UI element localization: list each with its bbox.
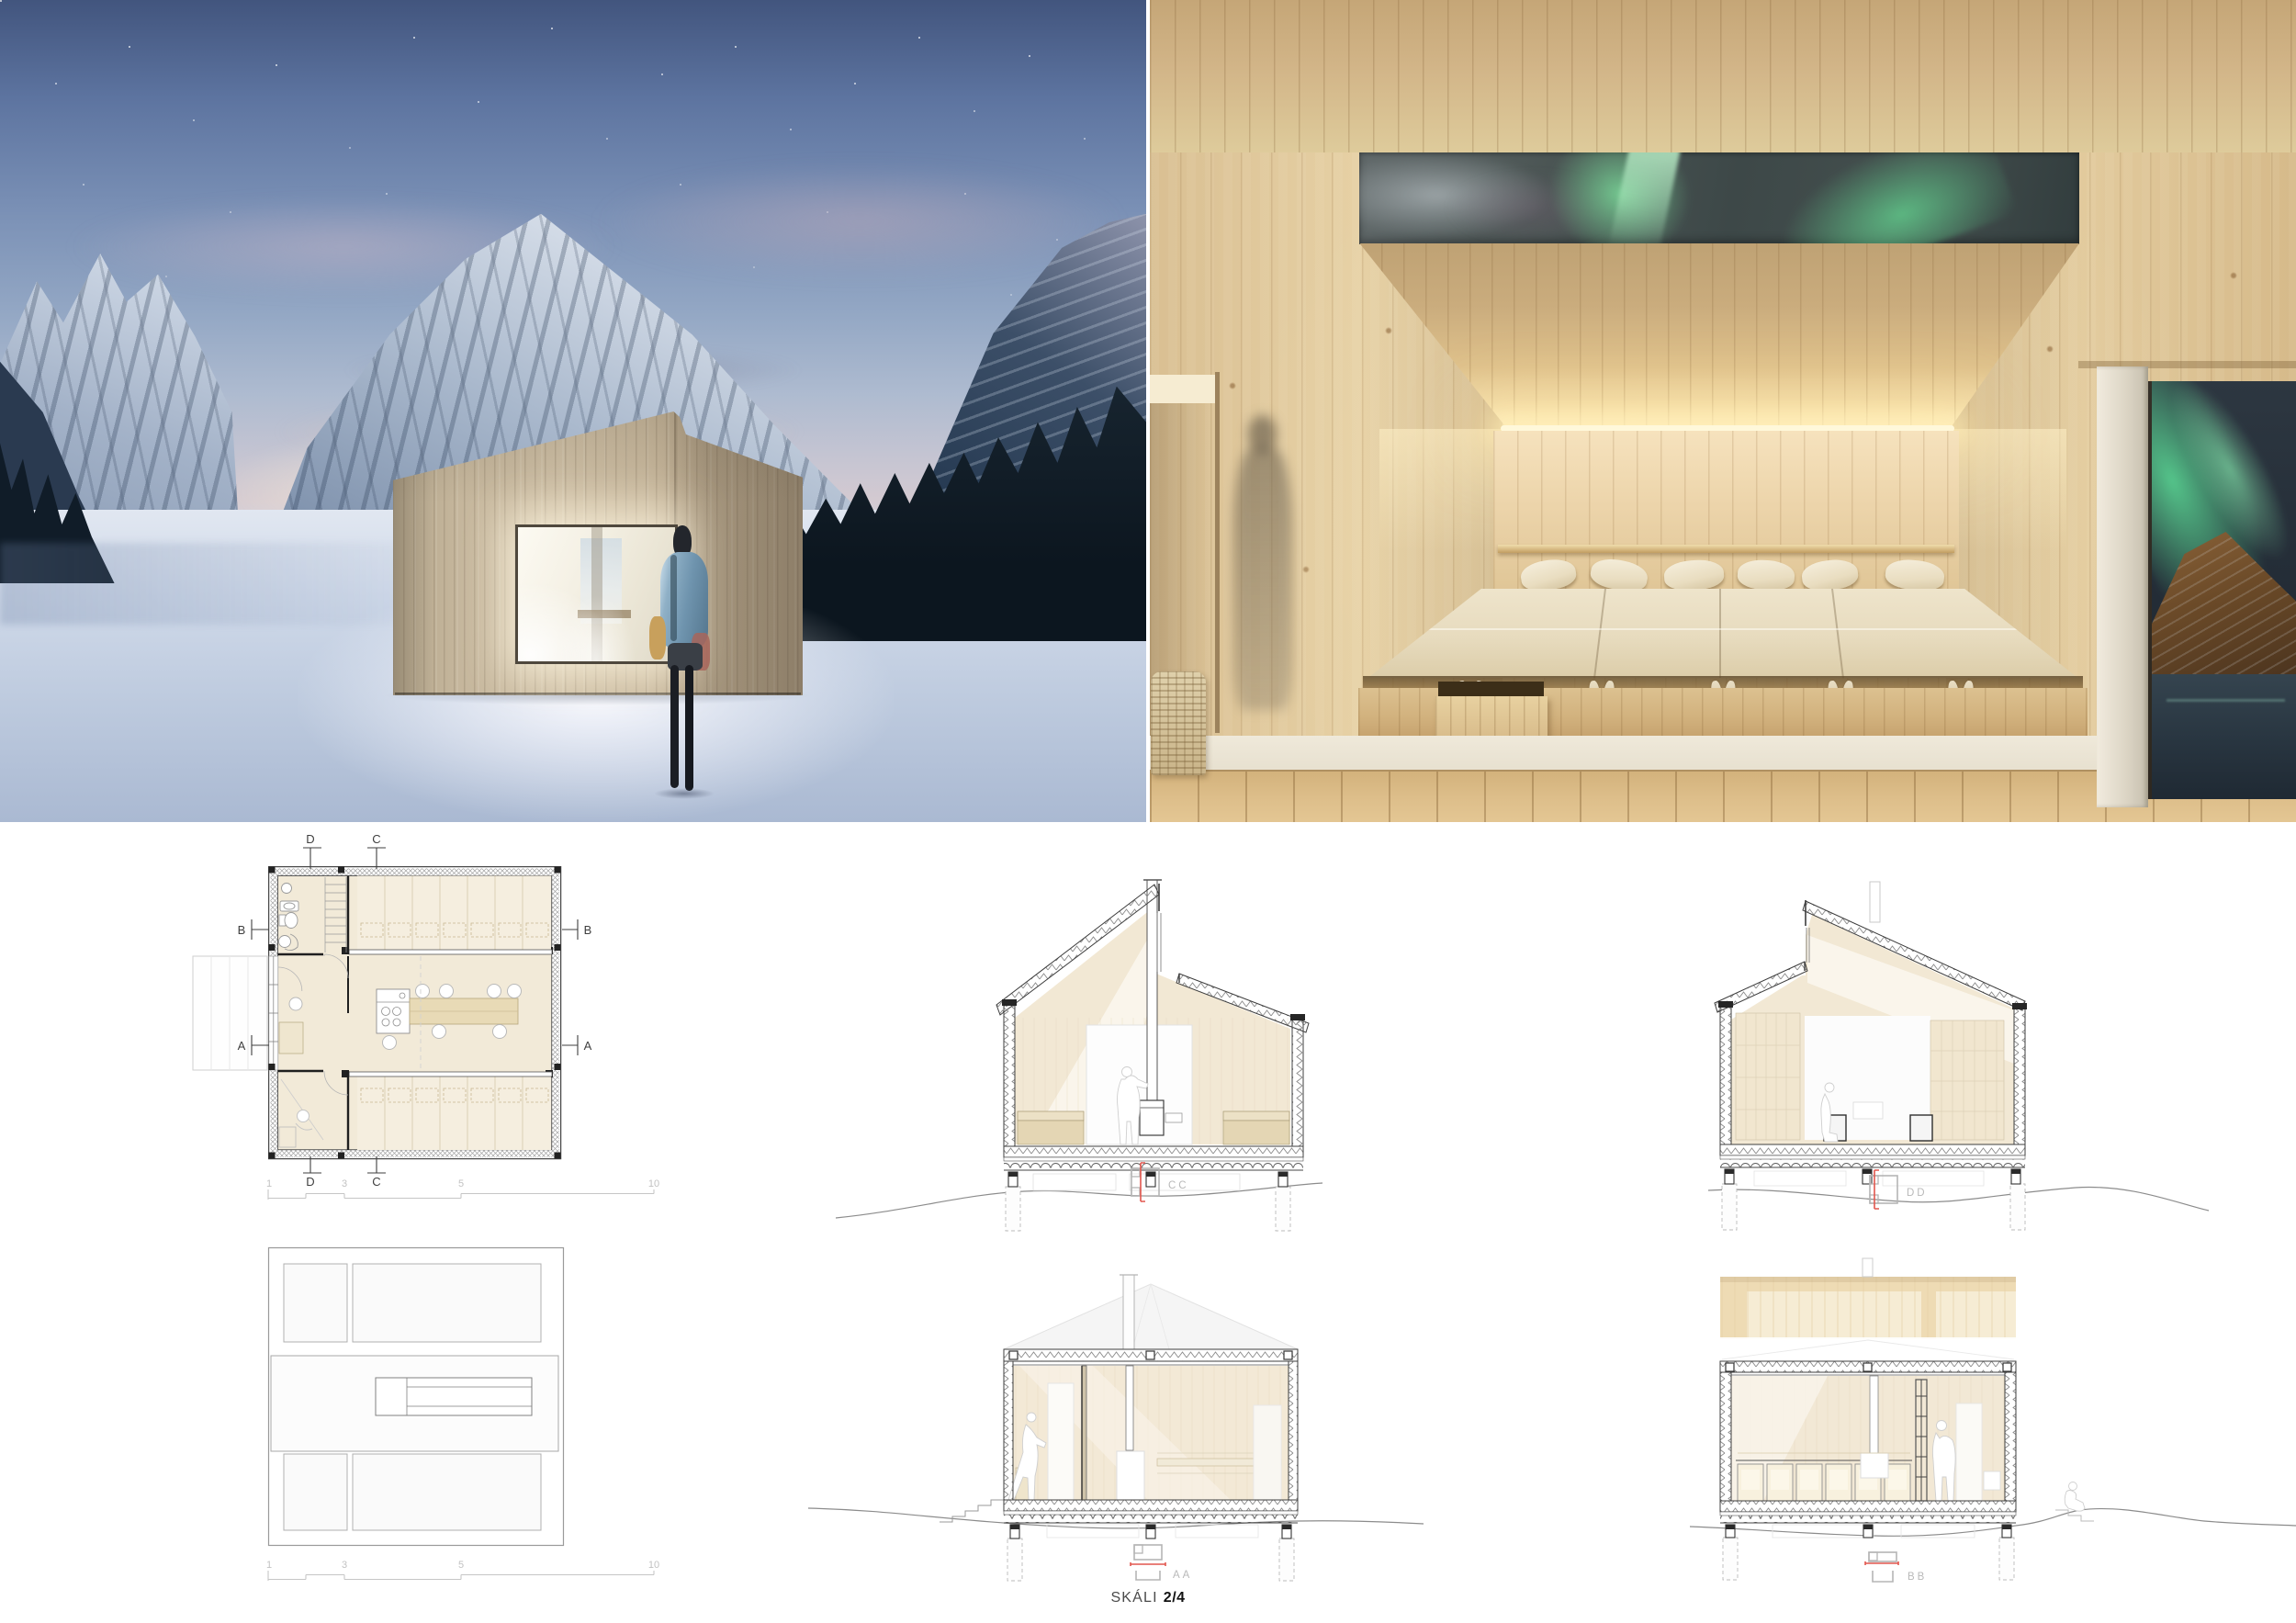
side-table [1984, 1471, 2000, 1490]
marker-d-top: D [306, 832, 314, 846]
glazed-entry [269, 956, 278, 1070]
scale-tick: 5 [458, 1178, 464, 1189]
floor-deck [1004, 1146, 1303, 1170]
shelving-left [1736, 1013, 1800, 1140]
ceiling-planks [1150, 0, 2296, 152]
roof-band [1720, 1361, 2016, 1375]
family-bed-mattresses [1367, 589, 2078, 679]
scale-tick: 1 [266, 1560, 272, 1571]
roof-plan: 1 3 5 10 [188, 1211, 703, 1623]
deck [193, 956, 267, 1070]
aurora-streak [1751, 152, 2020, 244]
aurora-reflection [2167, 699, 2285, 702]
presentation-board: D C D C B B A A 1 3 5 10 [0, 0, 2296, 1623]
section-aa: AA [790, 1222, 1433, 1623]
backpack-strap [670, 555, 677, 640]
cabin [393, 411, 803, 698]
blurred-person [1225, 415, 1300, 736]
mattress-seam [1719, 589, 1721, 679]
floor-plan: D C D C B B A A 1 3 5 10 [188, 829, 703, 1215]
lit-doorway [1150, 375, 1215, 402]
dining-table [410, 998, 518, 1024]
scale-tick: 5 [458, 1560, 464, 1571]
marker-c-bottom: C [372, 1175, 380, 1189]
person-shadow [654, 788, 715, 799]
wicker-basket [1151, 671, 1206, 775]
section-key: AA [1131, 1545, 1192, 1581]
marker-b-left: B [238, 923, 246, 937]
marker-a-right: A [584, 1039, 592, 1053]
blanket-fold [1424, 628, 2021, 630]
basket-weave [1151, 671, 1206, 775]
project-name: SKÁLI [1110, 1590, 1157, 1606]
interior-render [1150, 0, 2296, 822]
section-key: BB [1865, 1552, 1927, 1583]
clerestory-aurora-window [1359, 152, 2079, 244]
ground-line [1708, 1187, 2209, 1211]
sheet-number: 2/4 [1164, 1590, 1186, 1606]
ghost-roof [1004, 1275, 1298, 1349]
drawer-opening [1438, 682, 1544, 696]
section-dd: DD [1690, 871, 2223, 1257]
sheet-caption: SKÁLI2/4 [1047, 1590, 1249, 1606]
section-bb: BB [1690, 1222, 2296, 1623]
section-label-bb: BB [1908, 1572, 1927, 1583]
ground-line [836, 1183, 1322, 1218]
marker-b-right: B [584, 923, 592, 937]
ground-line-left [1690, 1526, 2016, 1536]
chimney-ghost [1870, 882, 1880, 922]
hip-bag [649, 616, 666, 659]
door-jamb [1215, 372, 1220, 734]
person-body [1233, 447, 1292, 710]
scale-bar: 1 3 5 10 [266, 1178, 659, 1200]
section-label-dd: DD [1907, 1188, 1928, 1199]
floor-deck [1720, 1144, 2025, 1167]
upper-elevation [1720, 1258, 2016, 1361]
wood-ceiling [1150, 0, 2296, 152]
section-key: DD [1870, 1170, 1928, 1209]
scale-tick: 1 [266, 1178, 272, 1189]
floor-deck [1720, 1501, 2016, 1523]
water [2152, 674, 2296, 799]
landscape-window [2148, 381, 2296, 799]
exterior-render [0, 0, 1146, 822]
scale-bar: 1 3 5 10 [266, 1560, 659, 1581]
section-label-aa: AA [1173, 1570, 1192, 1581]
scale-tick: 3 [342, 1560, 347, 1571]
shelving-right [1930, 1020, 2004, 1140]
headboard-shelf [1498, 545, 1954, 553]
floor-deck [1004, 1500, 1298, 1523]
foundation [1007, 1525, 1294, 1581]
ground-line-right [2016, 1509, 2296, 1526]
marker-c-top: C [372, 832, 380, 846]
section-label-cc: CC [1168, 1180, 1189, 1191]
scale-tick: 3 [342, 1178, 347, 1189]
window-reveal [2097, 366, 2148, 807]
scale-tick: 10 [648, 1560, 659, 1571]
kitchen [377, 989, 410, 1033]
stars [0, 0, 2, 2]
marker-a-left: A [238, 1039, 246, 1053]
person-leg [670, 665, 679, 788]
person-leg [685, 665, 693, 791]
person-figure [654, 525, 715, 794]
roof-band [1004, 1349, 1298, 1365]
mattress-seam [1593, 589, 1606, 679]
cut-line-red [1131, 1562, 1165, 1566]
skylight [376, 1378, 532, 1415]
white-door [1956, 1403, 1982, 1501]
scale-tick: 10 [648, 1178, 659, 1189]
cloud [596, 164, 1123, 279]
marker-d-bottom: D [306, 1175, 314, 1189]
mattress-seam [1831, 589, 1844, 679]
section-cc: CC [808, 871, 1341, 1257]
